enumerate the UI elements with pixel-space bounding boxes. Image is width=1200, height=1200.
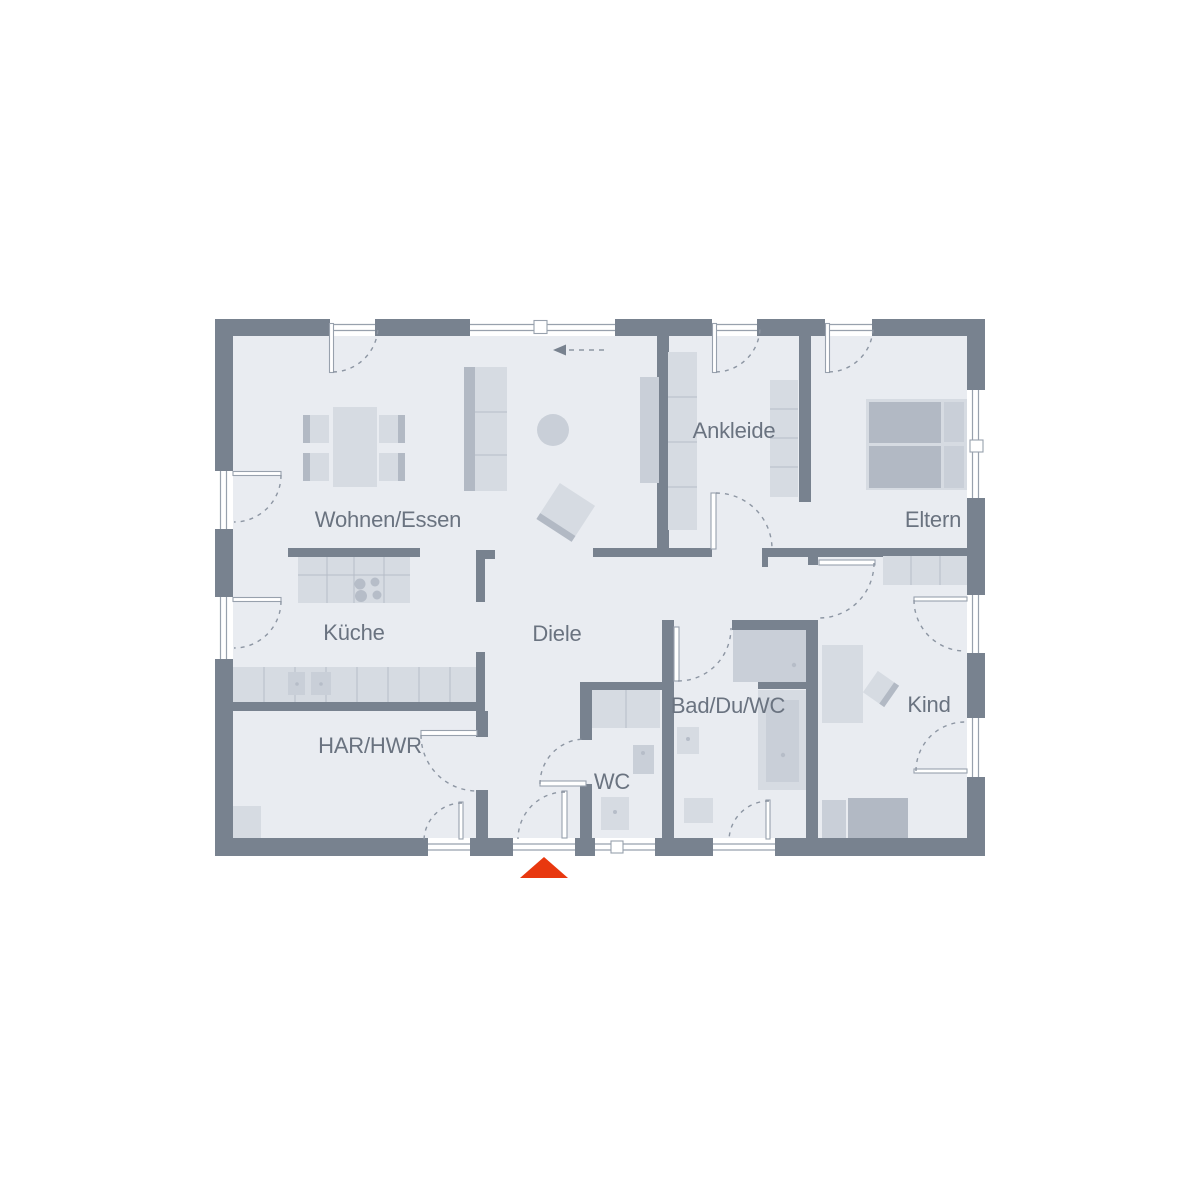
- kitchen-counter: [233, 667, 476, 702]
- toilet: [633, 745, 654, 774]
- sash-wohnen-left: [233, 472, 281, 476]
- wc-window-handle: [611, 841, 623, 853]
- entrance-door-leaf: [562, 791, 567, 838]
- entrance-door-opening: [513, 838, 575, 856]
- sash-kind-right-2: [914, 769, 967, 773]
- room-label-diele: Diele: [532, 621, 581, 646]
- door-leaf-ankleide: [711, 493, 716, 549]
- wall-post-corridor: [762, 548, 768, 567]
- room-label-kind: Kind: [907, 692, 950, 717]
- wall-kueche-diele-lower: [476, 652, 485, 713]
- shower: [733, 630, 806, 682]
- room-label-eltern: Eltern: [905, 507, 961, 532]
- room-label-ankleide: Ankleide: [693, 418, 776, 443]
- sash-kueche-left: [233, 598, 281, 602]
- wall-wc-left-lower: [580, 784, 592, 838]
- sofa: [464, 367, 507, 491]
- wall-kueche-diele-upper: [476, 550, 485, 602]
- door-leaf-har: [421, 731, 477, 736]
- coffee-table: [537, 414, 569, 446]
- pillow-1: [944, 402, 964, 442]
- door-leaf-kind: [819, 560, 875, 565]
- kind-bed: [822, 645, 863, 723]
- wall-bad-kind: [806, 620, 818, 838]
- wall-har-diele-upper: [476, 711, 488, 737]
- dining-table: [333, 407, 377, 487]
- kind-sofa-left: [822, 800, 846, 838]
- wall-wohnen-kueche: [288, 548, 420, 557]
- utility-unit: [233, 806, 261, 838]
- window-wc-bottom: [595, 838, 655, 856]
- eltern-window-handle: [970, 440, 983, 452]
- wall-ankleide-south-left: [593, 548, 712, 557]
- wall-ankleide-eltern: [799, 336, 811, 502]
- room-label-kueche: Küche: [323, 620, 384, 645]
- sash-bad-bottom: [766, 800, 770, 839]
- room-label-har-hwr: HAR/HWR: [318, 733, 422, 758]
- kind-sofa-right: [848, 798, 908, 838]
- room-label-wc: WC: [594, 769, 631, 794]
- window-wohnen-left: [215, 471, 233, 529]
- wall-shower-stub: [758, 682, 812, 689]
- wall-kueche-har: [233, 702, 476, 711]
- wall-bad-top: [732, 620, 818, 630]
- window-eltern-top: [825, 319, 872, 336]
- window-kind-right-1: [967, 595, 985, 653]
- wall-wc-bad: [662, 620, 674, 838]
- sash-wohnen-top: [330, 324, 334, 373]
- wall-wc-left-upper: [580, 682, 592, 740]
- door-leaf-wc: [540, 781, 586, 786]
- window-bad-bottom: [713, 838, 775, 856]
- room-label-bad-du-wc: Bad/Du/WC: [671, 693, 786, 718]
- entrance-triangle-icon: [520, 857, 568, 878]
- wall-post-kind-door: [808, 556, 818, 565]
- window-ankleide-top: [712, 319, 757, 336]
- window-wohnen-top: [330, 319, 375, 336]
- wall-har-diele-lower: [476, 790, 488, 838]
- floor-plan-page: Wohnen/Essen Küche Diele HAR/HWR WC Bad/…: [0, 0, 1200, 1200]
- washing-machine: [684, 798, 713, 823]
- wall-eltern-south: [762, 548, 967, 557]
- window-kind-right-2: [967, 718, 985, 777]
- exterior-wall-left: [215, 319, 233, 856]
- sliding-window-mullion: [534, 321, 547, 334]
- sash-kind-right-1: [914, 597, 967, 601]
- kind-wardrobe: [883, 556, 967, 585]
- window-har-bottom: [428, 838, 470, 856]
- window-kueche-left: [215, 597, 233, 659]
- room-label-wohnen-essen: Wohnen/Essen: [315, 507, 461, 532]
- floor-plan: Wohnen/Essen Küche Diele HAR/HWR WC Bad/…: [0, 0, 1200, 1200]
- tv-board: [640, 377, 659, 483]
- sash-har-bottom: [459, 802, 463, 839]
- pillow-2: [944, 446, 964, 488]
- furniture-eltern: [866, 399, 967, 490]
- sash-eltern-top: [826, 324, 830, 373]
- sash-ankleide-top: [713, 324, 717, 373]
- kitchen-island: [298, 557, 410, 603]
- wall-wc-top: [580, 682, 662, 690]
- door-leaf-bad: [674, 627, 679, 681]
